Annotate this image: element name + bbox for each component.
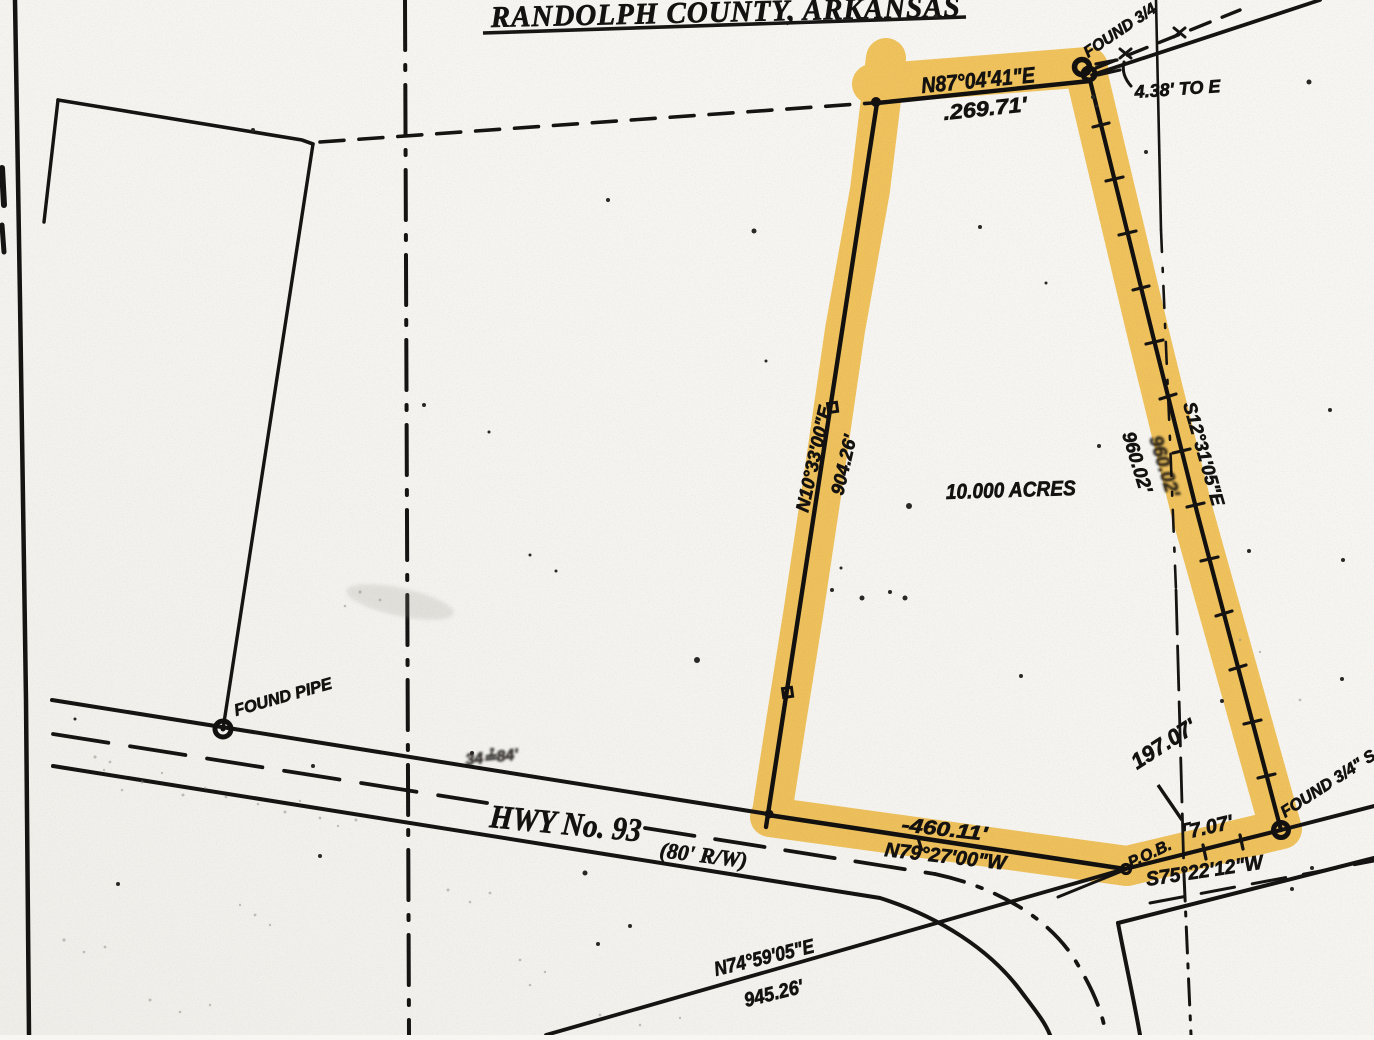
svg-text:10.000 ACRES: 10.000 ACRES xyxy=(945,477,1076,504)
